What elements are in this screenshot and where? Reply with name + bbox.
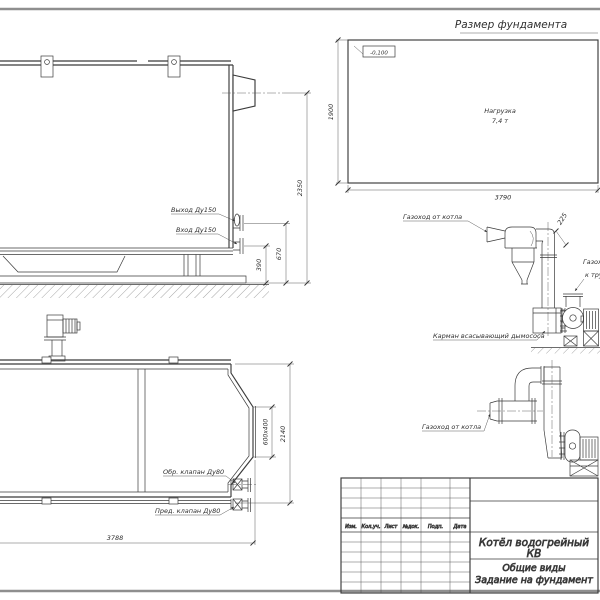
check-valve-label: Обр. клапан Ду80 [163, 468, 224, 476]
drawing-canvas: Выход Ду150 Вход Ду150 390 670 2350 Разм… [0, 0, 600, 600]
fan-motor [584, 309, 599, 331]
outlet-nozzle [233, 214, 243, 231]
suction-pocket [533, 308, 565, 333]
dim-outlet-height: 670 [275, 248, 283, 260]
flue-to-stack-label-line1: Газоход [583, 258, 600, 266]
lifting-lug [41, 56, 53, 77]
dim-inlet-height: 390 [255, 259, 263, 271]
ground-hatch [531, 348, 600, 354]
inlet-nozzle [233, 238, 243, 254]
suction-pocket-label: Карман всасывающий дымососа [433, 332, 545, 340]
inlet-label: Вход Ду150 [176, 226, 216, 234]
smoke-exhauster-fan [563, 308, 599, 347]
foundation-outline [348, 40, 598, 183]
col-koluch: Кол.уч. [362, 524, 381, 530]
boiler-plan-view-labels: Обр. клапан Ду80 Пред. клапан Ду80 600х4… [107, 419, 287, 542]
col-izm: Изм. [345, 524, 357, 530]
col-data: Дата [453, 524, 467, 530]
col-list: Лист [384, 524, 399, 530]
check-valve [228, 478, 256, 492]
drawing-sheet: Выход Ду150 Вход Ду150 390 670 2350 Разм… [0, 0, 600, 600]
load-value: 7,4 т [492, 117, 508, 125]
outlet-label: Выход Ду150 [171, 206, 216, 214]
title-block: Изм. Кол.уч. Лист №док. Подп. Дата Котёл… [341, 478, 598, 593]
flue-from-boiler-label: Газоход от котла [422, 423, 481, 431]
ground-hatch [0, 285, 269, 298]
burner-assembly [44, 315, 80, 361]
boiler-side-view [0, 56, 311, 298]
col-ndok: №док. [402, 524, 419, 530]
dim-total-height: 2350 [296, 180, 304, 197]
flue-from-boiler-label: Газоход от котла [403, 213, 462, 221]
doc-title-line2: Задание на фундамент [475, 575, 593, 586]
flue-to-stack-label-line2: к трубе [585, 271, 600, 279]
dim-plan-length: 3788 [107, 534, 124, 542]
dim-plan-width: 2140 [279, 426, 287, 443]
dim-flue-outlet: 600х400 [263, 419, 270, 446]
safety-valve [231, 498, 251, 512]
elevation-mark: -0,100 [370, 51, 388, 57]
cyclone [505, 227, 537, 284]
doc-title-line1: Общие виды [502, 563, 566, 574]
load-label: Нагрузка [484, 107, 516, 115]
product-title-line2: КВ [527, 548, 542, 560]
flue-diagram-lower [477, 360, 598, 476]
foundation-plan [336, 33, 600, 193]
dim-duct-225: 225 [556, 212, 569, 227]
foundation-title: Размер фундамента [455, 19, 567, 31]
lifting-lug [168, 56, 180, 77]
flue-diagram-lower-labels: Газоход от котла [422, 414, 490, 431]
col-podp: Подп. [428, 524, 443, 530]
dim-foundation-width: 1900 [327, 104, 335, 121]
boiler-plan-view [0, 315, 294, 546]
ash-pan [3, 256, 125, 272]
smoke-exhauster-fan [559, 430, 598, 476]
dim-foundation-length: 3790 [495, 194, 512, 202]
safety-valve-label: Пред. клапан Ду80 [155, 507, 220, 515]
